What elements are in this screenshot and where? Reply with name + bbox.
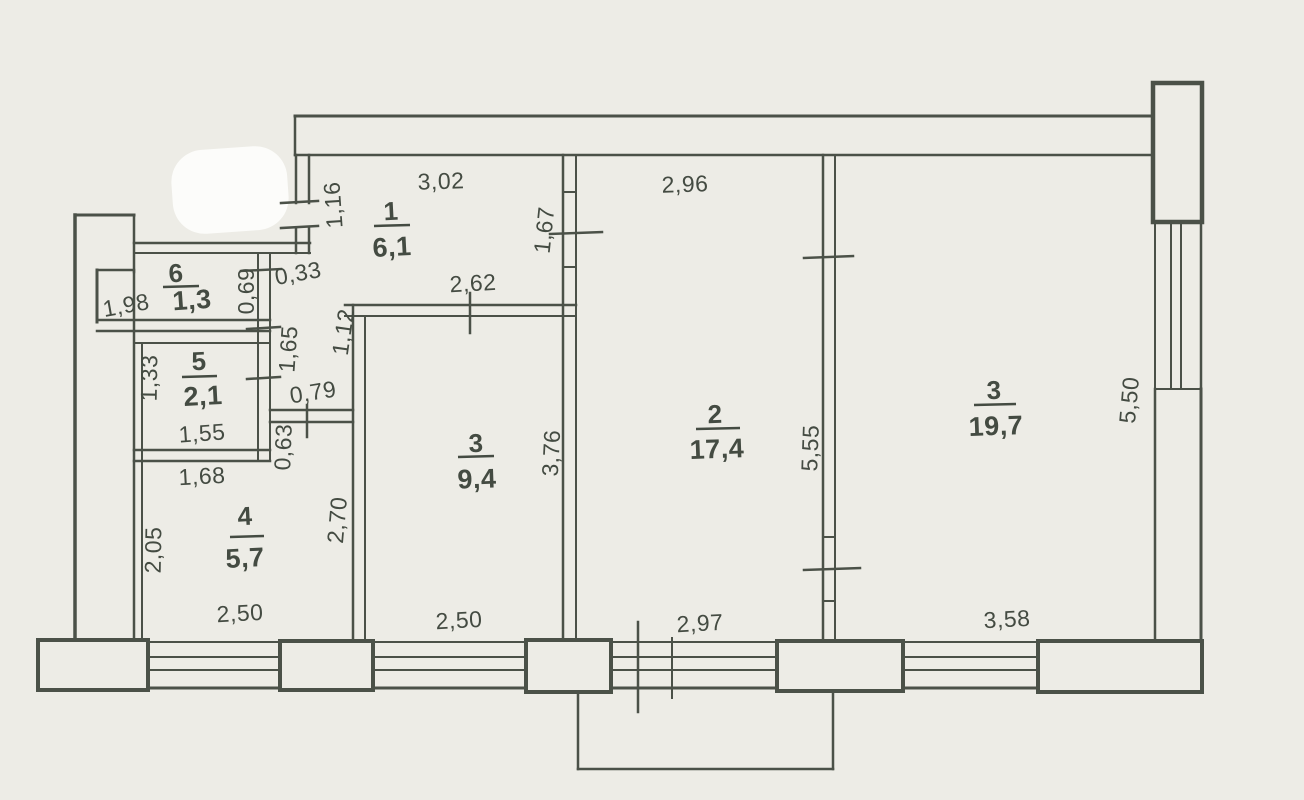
room-number: 6 [167, 258, 184, 289]
room-number: 3 [986, 375, 1002, 406]
dimension-label: 3,76 [537, 429, 565, 477]
room-number: 3 [468, 428, 484, 459]
erased-area-blob [169, 144, 291, 236]
dimension-label: 2,05 [140, 526, 167, 573]
dimension-label: 3,58 [983, 605, 1031, 633]
dimension-label: 0,69 [233, 268, 259, 315]
dimension-label: 5,55 [796, 424, 824, 472]
room-number-underline [182, 376, 217, 377]
room-area: 1,3 [171, 284, 212, 317]
room-number-underline [230, 536, 264, 537]
dimension-label: 2,97 [676, 609, 724, 637]
dimension-label: 3,02 [417, 167, 465, 195]
dimension-label: 5,50 [1114, 376, 1144, 425]
dimension-label: 2,50 [216, 599, 264, 627]
wall-pier [526, 640, 611, 692]
dimension-label: 2,70 [322, 496, 352, 545]
dimension-label: 2,62 [449, 269, 497, 297]
room-area: 5,7 [225, 542, 266, 574]
floor-plan: 3,022,961,161,671,980,690,331,651,122,62… [0, 0, 1304, 800]
room-area: 6,1 [372, 231, 413, 263]
room-number: 4 [237, 501, 254, 532]
room-number-underline [696, 428, 740, 429]
wall-block [1153, 83, 1202, 222]
room-number-underline [374, 225, 410, 226]
wall-pier [280, 641, 373, 690]
dimension-label: 2,50 [435, 606, 483, 634]
room-area: 2,1 [183, 380, 224, 412]
room-number-underline [458, 456, 494, 457]
dimension-label: 1,33 [136, 354, 163, 401]
dimension-label: 1,55 [178, 418, 226, 447]
dimension-label: 1,65 [273, 325, 302, 373]
wall-pier [38, 640, 148, 690]
room-area: 17,4 [689, 433, 745, 465]
room-number: 1 [383, 196, 400, 227]
room-number-underline [974, 404, 1016, 405]
dimension-label: 1,67 [529, 205, 560, 254]
dimension-label: 0,63 [269, 423, 297, 471]
floor-plan-svg: 3,022,961,161,671,980,690,331,651,122,62… [0, 0, 1304, 800]
room-area: 9,4 [457, 463, 497, 494]
dimension-label: 1,68 [178, 462, 226, 490]
room-area: 19,7 [968, 410, 1024, 442]
dimension-label: 1,16 [318, 181, 347, 229]
room-number: 2 [707, 399, 723, 430]
dimension-label: 2,96 [661, 170, 709, 198]
wall-pier [777, 641, 903, 691]
wall-pier [1038, 641, 1202, 692]
room-number: 5 [191, 346, 208, 377]
